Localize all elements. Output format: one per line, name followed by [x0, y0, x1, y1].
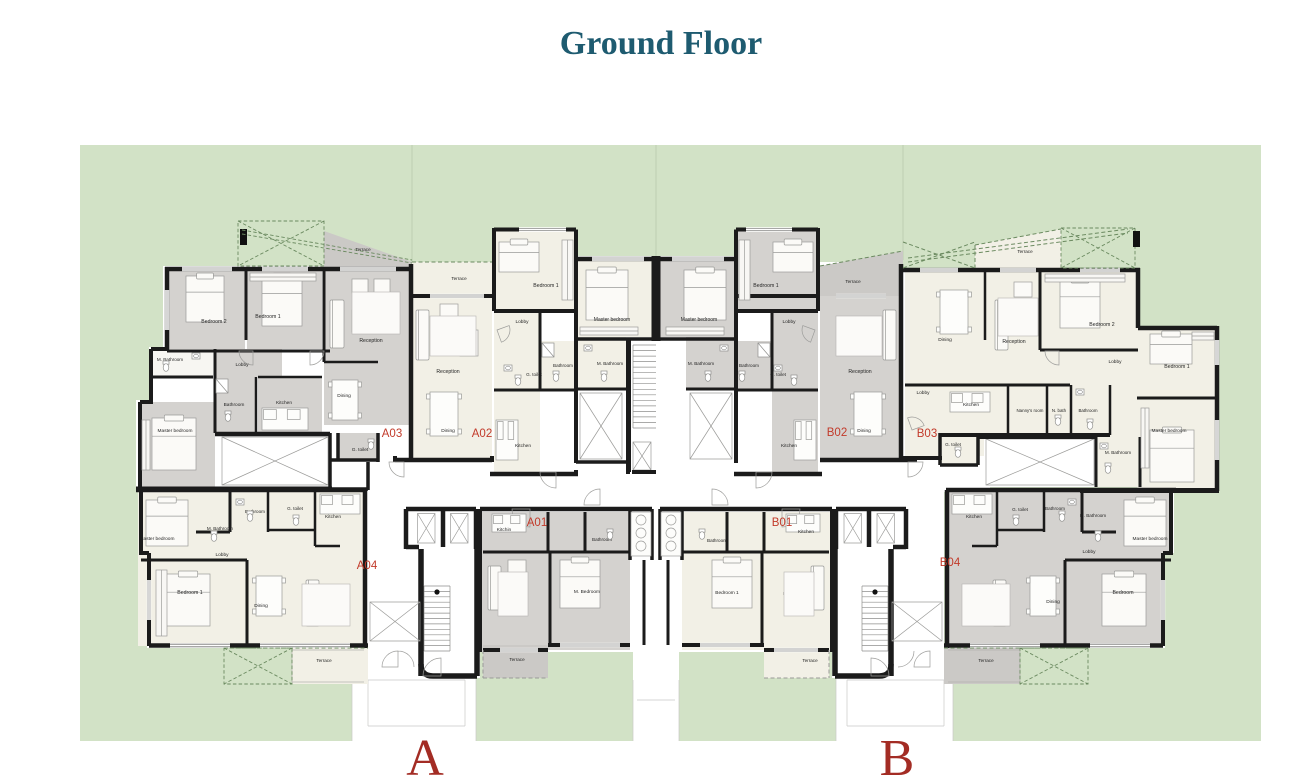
- svg-text:Bathroom: Bathroom: [224, 402, 245, 408]
- svg-text:Master bedroom: Master bedroom: [158, 428, 193, 434]
- svg-text:G. toilet: G. toilet: [1012, 507, 1029, 512]
- svg-text:A01: A01: [527, 517, 547, 529]
- svg-text:B04: B04: [940, 557, 961, 569]
- svg-text:Dining: Dining: [1046, 599, 1060, 605]
- svg-text:Bedroom 1: Bedroom 1: [255, 314, 280, 320]
- svg-text:Terrace: Terrace: [802, 658, 818, 663]
- svg-text:Reception: Reception: [436, 369, 459, 375]
- svg-text:G. toilet: G. toilet: [287, 506, 304, 511]
- svg-text:M. Bathroom: M. Bathroom: [1105, 450, 1131, 455]
- svg-text:Kitchen: Kitchen: [966, 514, 982, 520]
- svg-text:Dining: Dining: [938, 337, 952, 343]
- svg-text:Bathroom: Bathroom: [707, 538, 727, 543]
- svg-text:Reception: Reception: [848, 369, 871, 375]
- svg-text:Lobby: Lobby: [782, 319, 796, 325]
- svg-text:A02: A02: [472, 428, 492, 440]
- svg-text:Kitchen: Kitchen: [781, 443, 797, 449]
- svg-text:Kitchen: Kitchen: [798, 529, 814, 535]
- svg-text:M. Bathroom: M. Bathroom: [597, 361, 623, 366]
- svg-text:Master bedroom: Master bedroom: [594, 317, 630, 323]
- svg-text:M. Bathroom: M. Bathroom: [207, 526, 233, 531]
- svg-text:Terrace: Terrace: [978, 658, 994, 663]
- svg-text:Master bedroom: Master bedroom: [681, 317, 717, 323]
- svg-text:Bathroom: Bathroom: [1078, 408, 1097, 413]
- svg-text:Lobby: Lobby: [515, 319, 529, 325]
- svg-text:N. bath: N. bath: [1052, 408, 1067, 413]
- svg-text:G. toilet: G. toilet: [945, 442, 962, 447]
- svg-text:Bedroom 2: Bedroom 2: [201, 319, 226, 325]
- svg-text:Kitchen: Kitchen: [276, 400, 292, 406]
- svg-text:Dining: Dining: [254, 603, 268, 609]
- svg-text:Terrace: Terrace: [845, 279, 861, 284]
- svg-text:Kitchen: Kitchen: [963, 402, 979, 408]
- svg-text:Kitchen: Kitchen: [325, 514, 341, 520]
- svg-text:B02: B02: [827, 427, 847, 439]
- svg-text:Dining: Dining: [441, 428, 455, 434]
- svg-text:M. Bedroom: M. Bedroom: [574, 589, 600, 595]
- svg-text:Terrace: Terrace: [316, 658, 332, 663]
- svg-text:Terrace: Terrace: [1017, 249, 1033, 254]
- svg-text:Bedroom 1: Bedroom 1: [753, 283, 778, 289]
- svg-text:Master bedroom: Master bedroom: [140, 536, 175, 542]
- svg-text:Dining: Dining: [337, 393, 351, 399]
- svg-text:Terrace: Terrace: [509, 657, 525, 662]
- svg-text:Bedroom 1: Bedroom 1: [1164, 364, 1189, 370]
- svg-text:Master bedroom: Master bedroom: [1152, 428, 1187, 434]
- svg-text:Kitchin: Kitchin: [497, 527, 512, 533]
- svg-text:Lobby: Lobby: [1082, 549, 1096, 555]
- svg-text:Bedroom 1: Bedroom 1: [177, 590, 202, 596]
- svg-text:Lobby: Lobby: [235, 362, 249, 368]
- svg-text:Nanny's room: Nanny's room: [1017, 408, 1044, 413]
- svg-text:Bathroom: Bathroom: [553, 363, 573, 368]
- svg-text:A04: A04: [357, 560, 378, 572]
- svg-text:Bedroom: Bedroom: [1112, 590, 1133, 596]
- svg-text:G. toilet: G. toilet: [770, 372, 787, 377]
- svg-text:Terrace: Terrace: [355, 247, 371, 252]
- svg-text:G. toilet: G. toilet: [352, 447, 369, 453]
- svg-text:M. Bathroom: M. Bathroom: [157, 357, 183, 362]
- svg-text:Lobby: Lobby: [215, 552, 229, 558]
- svg-text:B: B: [880, 730, 915, 776]
- svg-text:Lobby: Lobby: [916, 390, 930, 396]
- svg-text:Terrace: Terrace: [451, 276, 467, 281]
- svg-text:Bedroom 1: Bedroom 1: [533, 283, 558, 289]
- svg-text:Bathroom: Bathroom: [739, 363, 759, 368]
- svg-text:Bathroom: Bathroom: [1045, 506, 1065, 511]
- svg-text:Kitchen: Kitchen: [515, 443, 531, 449]
- svg-text:B01: B01: [772, 517, 792, 529]
- svg-text:M. Bathroom: M. Bathroom: [688, 361, 714, 366]
- svg-text:Reception: Reception: [359, 338, 382, 344]
- svg-text:Dining: Dining: [857, 428, 871, 434]
- svg-text:B03: B03: [917, 428, 937, 440]
- svg-text:Reception: Reception: [1002, 339, 1025, 345]
- svg-text:Master bedroom: Master bedroom: [1133, 536, 1168, 542]
- svg-text:Bedroom 1: Bedroom 1: [715, 590, 739, 596]
- svg-text:A03: A03: [382, 428, 402, 440]
- svg-text:Ground Floor: Ground Floor: [560, 25, 762, 62]
- svg-text:G. toilet: G. toilet: [526, 372, 543, 377]
- svg-text:M. Bathroom: M. Bathroom: [1080, 513, 1106, 518]
- svg-text:Bedroom 2: Bedroom 2: [1089, 322, 1114, 328]
- svg-text:A: A: [406, 730, 444, 776]
- svg-text:Lobby: Lobby: [1108, 359, 1122, 365]
